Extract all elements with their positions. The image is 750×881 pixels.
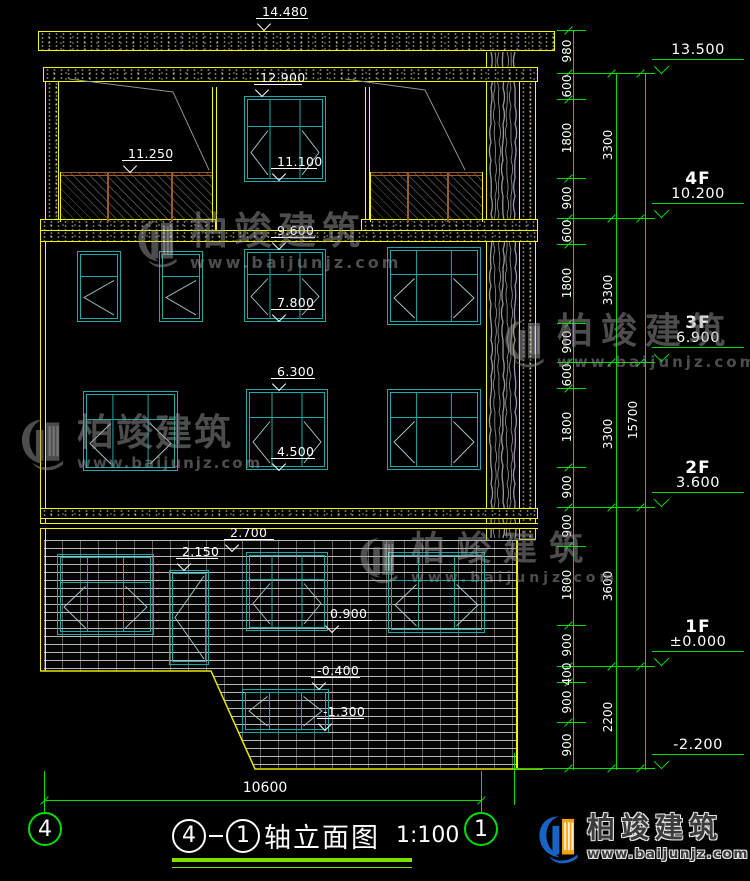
footer-url: www.baijunjz.com bbox=[587, 846, 749, 862]
floor-level-marker: 13.500 bbox=[652, 43, 744, 72]
elevation-marker: 2.150 bbox=[176, 545, 218, 571]
floor-level-marker: -2.200 bbox=[652, 738, 744, 767]
floor-elevation-value: 13.500 bbox=[652, 43, 744, 58]
dim-segment-label: 900 bbox=[560, 515, 574, 538]
dim-tick-line bbox=[557, 178, 586, 179]
elevation-triangle-icon bbox=[654, 651, 670, 667]
title-axis-from: 4 bbox=[172, 819, 206, 853]
elevation-value: 7.800 bbox=[277, 295, 314, 310]
floor-level-marker: 4F10.200 bbox=[652, 171, 744, 216]
footer-logo: 柏竣建筑 www.baijunjz.com bbox=[534, 812, 749, 868]
dim-overall-label: 15700 bbox=[626, 401, 640, 439]
dim-segment-label: 980 bbox=[560, 40, 574, 63]
footer-brand: 柏竣建筑 bbox=[587, 812, 749, 844]
elevation-triangle-icon bbox=[654, 492, 670, 508]
dim-segment-label: 1800 bbox=[560, 570, 574, 601]
elevation-value: 2.700 bbox=[230, 525, 267, 540]
window bbox=[387, 389, 481, 470]
elevation-marker: 11.100 bbox=[271, 155, 317, 181]
dim-tick-line bbox=[557, 99, 586, 100]
door bbox=[169, 570, 209, 665]
floor-elevation-value: ±0.000 bbox=[652, 635, 744, 650]
elevation-triangle-icon bbox=[654, 59, 670, 75]
elevation-triangle-icon bbox=[654, 754, 670, 770]
dim-story-label: 2200 bbox=[601, 702, 615, 733]
floor-level-marker: 2F3.600 bbox=[652, 460, 744, 505]
elevation-bar bbox=[652, 651, 744, 652]
dim-segment-label: 600 bbox=[560, 75, 574, 98]
dim-segment-label: 1800 bbox=[560, 268, 574, 299]
title-underline-thin bbox=[172, 867, 412, 868]
dim-story-label: 3300 bbox=[601, 275, 615, 306]
dim-ext-right bbox=[481, 771, 482, 812]
elevation-value: 11.250 bbox=[128, 146, 174, 161]
baijun-logo-icon bbox=[534, 812, 583, 864]
elevation-bar bbox=[652, 203, 744, 204]
elevation-value: -0.400 bbox=[317, 663, 359, 678]
elevation-triangle-icon bbox=[123, 159, 137, 173]
baijun-logo-icon bbox=[534, 812, 583, 868]
window bbox=[242, 689, 329, 733]
dim-segment-label: 1800 bbox=[560, 123, 574, 154]
cad-elevation-drawing: 14.480 12.900 11.250 11.100 9.600 7.800 bbox=[0, 0, 750, 881]
elevation-value: 4.500 bbox=[277, 444, 314, 459]
dim-segment-label: 600 bbox=[560, 220, 574, 243]
elevation-marker: 6.300 bbox=[271, 365, 315, 391]
elevation-triangle-icon bbox=[257, 17, 271, 31]
dim-story-label: 3300 bbox=[601, 130, 615, 161]
elevation-marker: -1.300 bbox=[317, 705, 364, 731]
title-axis-to: 1 bbox=[226, 819, 260, 853]
floor-label: 1F bbox=[652, 619, 744, 635]
elevation-triangle-icon bbox=[272, 308, 286, 322]
window bbox=[159, 251, 203, 322]
window bbox=[77, 251, 121, 322]
elevation-triangle-icon bbox=[272, 167, 286, 181]
title-name: 轴立面图 bbox=[264, 816, 380, 855]
dim-ext-corner bbox=[514, 753, 515, 805]
elevation-marker: 2.700 bbox=[224, 526, 274, 552]
elevation-triangle-icon bbox=[654, 347, 670, 363]
dim-story-label: 3600 bbox=[601, 571, 615, 602]
dim-tick-line bbox=[557, 722, 586, 723]
floor-level-marker: 3F6.900 bbox=[652, 315, 744, 360]
bottom-dimension-text: 10600 bbox=[225, 780, 305, 796]
floor-elevation-value: -2.200 bbox=[652, 738, 744, 753]
dim-story-label: 3300 bbox=[601, 419, 615, 450]
elevation-bar bbox=[652, 347, 744, 348]
floor-label: 4F bbox=[652, 171, 744, 187]
axis-bubble-4: 4 bbox=[28, 812, 62, 846]
elevation-value: 6.300 bbox=[277, 364, 314, 379]
outline-path bbox=[345, 79, 465, 170]
dim-tick-line bbox=[557, 388, 586, 389]
elevation-triangle-icon bbox=[318, 717, 332, 731]
window bbox=[387, 247, 481, 325]
title-underline-thick bbox=[172, 858, 412, 862]
elevation-triangle-icon bbox=[654, 203, 670, 219]
dim-line-bottom bbox=[44, 800, 482, 801]
dim-segment-label: 900 bbox=[560, 187, 574, 210]
elevation-marker: 11.250 bbox=[122, 147, 172, 173]
elevation-marker: 12.900 bbox=[254, 71, 302, 97]
dim-tick-line bbox=[557, 467, 586, 468]
elevation-triangle-icon bbox=[312, 676, 326, 690]
elevation-triangle-icon bbox=[225, 538, 239, 552]
floor-elevation-value: 10.200 bbox=[652, 187, 744, 202]
elevation-marker: 9.600 bbox=[271, 224, 315, 250]
dim-segment-label: 900 bbox=[560, 331, 574, 354]
elevation-value: -1.300 bbox=[323, 704, 365, 719]
dim-segment-label: 900 bbox=[560, 734, 574, 757]
elevation-triangle-icon bbox=[177, 557, 191, 571]
elevation-bar bbox=[652, 754, 744, 755]
elevation-value: 11.100 bbox=[277, 154, 323, 169]
elevation-value: 12.900 bbox=[260, 70, 306, 85]
dim-segment-label: 900 bbox=[560, 634, 574, 657]
floor-level-marker: 1F±0.000 bbox=[652, 619, 744, 664]
elevation-triangle-icon bbox=[272, 236, 286, 250]
title-scale: 1:100 bbox=[396, 823, 459, 848]
floor-elevation-value: 3.600 bbox=[652, 476, 744, 491]
dim-segment-label: 600 bbox=[560, 364, 574, 387]
dim-ext-left bbox=[44, 771, 45, 812]
window bbox=[57, 554, 154, 635]
elevation-value: 14.480 bbox=[262, 4, 308, 19]
dim-tick-line bbox=[557, 323, 586, 324]
title-dash bbox=[209, 835, 223, 837]
elevation-marker: 4.500 bbox=[271, 445, 315, 471]
elevation-triangle-icon bbox=[325, 619, 339, 633]
drawing-title: 4 1 轴立面图 1:100 bbox=[172, 816, 459, 855]
elevation-value: 2.150 bbox=[182, 544, 219, 559]
elevation-bar bbox=[652, 59, 744, 60]
elevation-triangle-icon bbox=[272, 457, 286, 471]
dim-segment-label: 900 bbox=[560, 691, 574, 714]
elevation-bar bbox=[652, 492, 744, 493]
dim-segment-label: 900 bbox=[560, 476, 574, 499]
window bbox=[83, 391, 178, 471]
floor-label: 3F bbox=[652, 315, 744, 331]
dim-tick-line bbox=[557, 625, 586, 626]
elevation-marker: -0.400 bbox=[311, 664, 360, 690]
floor-elevation-value: 6.900 bbox=[652, 331, 744, 346]
dim-tick-line bbox=[514, 768, 655, 769]
window bbox=[388, 552, 485, 633]
elevation-marker: 0.900 bbox=[324, 607, 372, 633]
elevation-triangle-icon bbox=[255, 83, 269, 97]
elevation-marker: 14.480 bbox=[256, 5, 308, 31]
elevation-marker: 7.800 bbox=[271, 296, 315, 322]
elevation-value: 0.900 bbox=[330, 606, 367, 621]
dim-tick-line bbox=[557, 30, 586, 31]
window bbox=[246, 552, 328, 631]
floor-label: 2F bbox=[652, 460, 744, 476]
elevation-value: 9.600 bbox=[277, 223, 314, 238]
axis-bubble-1: 1 bbox=[464, 812, 498, 846]
dim-tick-line bbox=[557, 244, 586, 245]
dim-segment-label: 1800 bbox=[560, 412, 574, 443]
elevation-triangle-icon bbox=[272, 377, 286, 391]
dim-tick-line bbox=[557, 546, 586, 547]
dim-segment-label: 400 bbox=[560, 663, 574, 686]
